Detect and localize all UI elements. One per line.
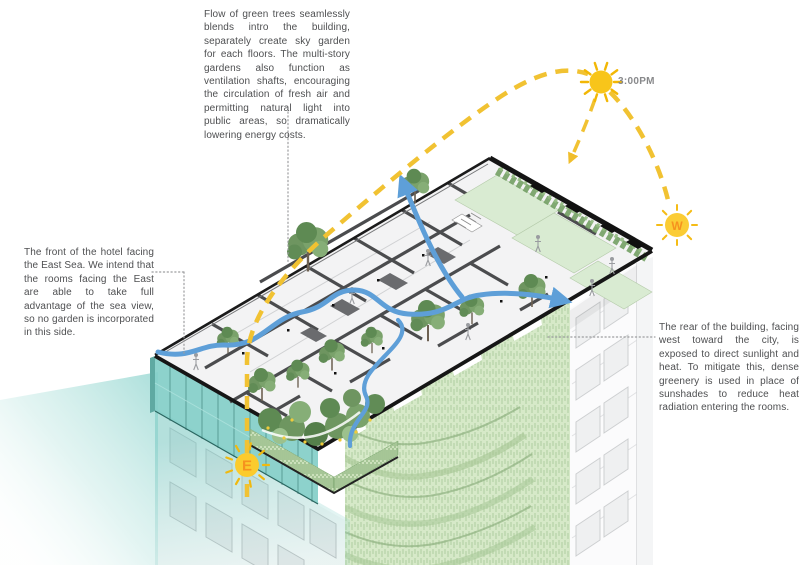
annotation-west-facade: The rear of the building, facing west to… <box>659 321 799 415</box>
annotation-sky-gardens: Flow of green trees seamlessly blends in… <box>204 8 350 142</box>
west-marker-label: W <box>671 219 682 233</box>
east-marker-label: E <box>242 458 252 475</box>
sun-ray-arrow <box>570 99 595 161</box>
architecture-diagram: Flow of green trees seamlessly blends in… <box>0 0 800 565</box>
sun-path-west-arc <box>610 92 668 200</box>
annotation-east-facade: The front of the hotel facing the East S… <box>24 246 154 340</box>
sun-time-label: 3:00PM <box>618 76 655 87</box>
sea-view-overlay <box>0 372 158 565</box>
